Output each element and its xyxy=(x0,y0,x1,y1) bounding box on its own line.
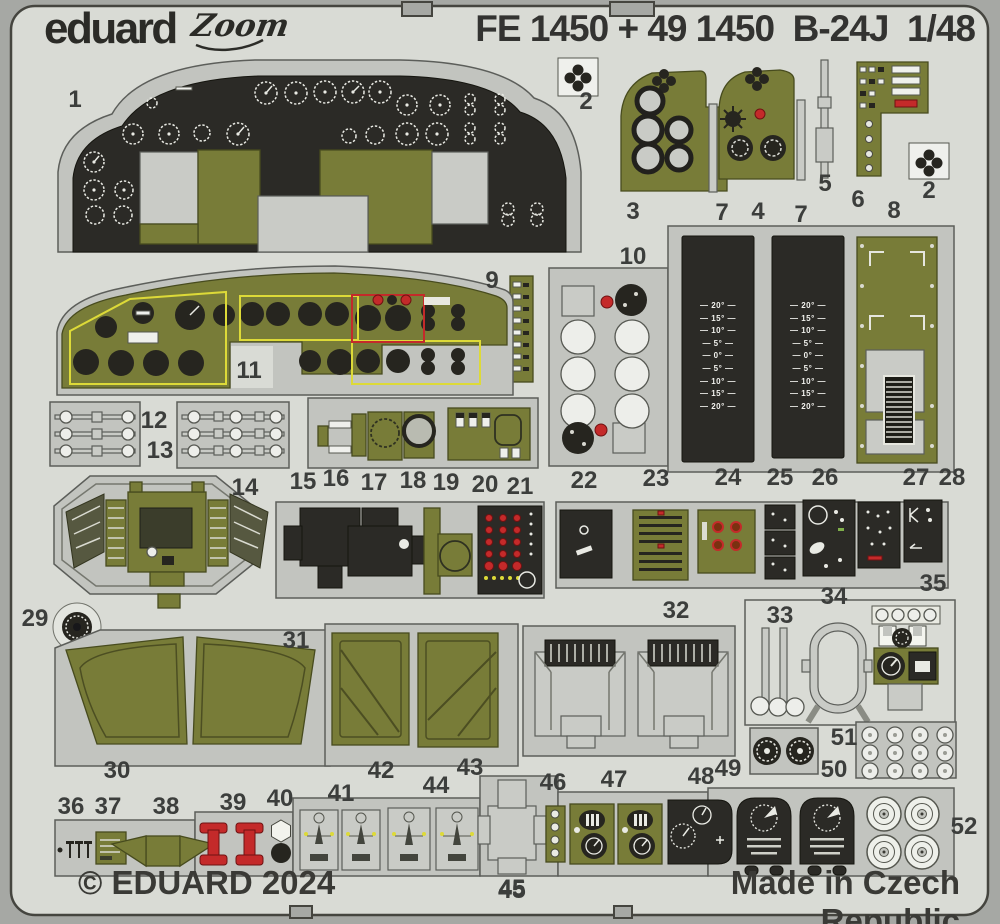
part-number-label: 39 xyxy=(220,789,247,817)
part-number-label: 5 xyxy=(818,170,831,198)
part-number-label: 9 xyxy=(485,267,498,295)
part-number-label: 31 xyxy=(283,627,310,655)
flap-scale-tick: — 10° — xyxy=(772,376,844,389)
flap-scale-tick: — 15° — xyxy=(682,313,754,326)
part-7-strip-b xyxy=(797,100,805,180)
flap-scale-tick: — 5° — xyxy=(682,338,754,351)
part-number-label: 3 xyxy=(626,198,639,226)
part-number-label: 35 xyxy=(920,570,947,598)
part-50-gears xyxy=(750,728,818,774)
photoetch-sheet: eduard Zoom FE 1450 + 49 1450 B-24J 1/48… xyxy=(0,0,1000,924)
part-number-label: 37 xyxy=(95,793,122,821)
part-32-seats xyxy=(523,626,735,756)
part-10-dials-frame xyxy=(549,268,668,466)
part-number-label: 48 xyxy=(688,763,715,791)
part-number-label: 42 xyxy=(368,757,395,785)
zoom-series-logo: Zoom xyxy=(189,8,292,44)
part-number-label: 16 xyxy=(323,465,350,493)
flap-scale-tick: — 5° — xyxy=(772,338,844,351)
part-number-label: 4 xyxy=(751,198,764,226)
part-1-main-instrument-panel xyxy=(58,60,581,252)
parts-15-21-fittings xyxy=(308,398,538,468)
part-number-label: 18 xyxy=(400,467,427,495)
flap-scale-tick: — 10° — xyxy=(772,325,844,338)
part-27-28-bulkhead-panel xyxy=(857,237,937,463)
part-number-label: 15 xyxy=(290,468,317,496)
part-number-label: 45 xyxy=(499,875,526,903)
part-number-label: 7 xyxy=(794,201,807,229)
flap-scale-tick: — 15° — xyxy=(772,388,844,401)
flap-scale-column: — 20° —— 15° —— 10° —— 5° —— 0° —— 5° ——… xyxy=(682,300,754,413)
flap-scale-tick: — 20° — xyxy=(772,300,844,313)
part-number-label: 30 xyxy=(104,757,131,785)
part-number-label: 1 xyxy=(68,86,81,114)
part-number-label: 17 xyxy=(361,469,388,497)
part-number-label: 29 xyxy=(22,605,49,633)
flap-scale-tick: — 15° — xyxy=(682,388,754,401)
part-number-label: 27 xyxy=(903,464,930,492)
part-number-label: 6 xyxy=(851,186,864,214)
part-number-label: 23 xyxy=(643,465,670,493)
part-number-label: 11 xyxy=(236,357,261,385)
parts-42-43-doors xyxy=(325,624,518,766)
part-number-label: 24 xyxy=(715,464,742,492)
part-51-grommets xyxy=(856,722,956,779)
flap-scale-tick: — 10° — xyxy=(682,325,754,338)
part-number-label: 20 xyxy=(472,471,499,499)
flap-scale-column: — 20° —— 15° —— 10° —— 5° —— 0° —— 5° ——… xyxy=(772,300,844,413)
sheet-title: FE 1450 + 49 1450 B-24J 1/48 xyxy=(430,8,975,50)
flap-scale-tick: — 10° — xyxy=(682,376,754,389)
part-number-label: 33 xyxy=(767,602,794,630)
part-number-label: 44 xyxy=(423,772,450,800)
part-number-label: 14 xyxy=(232,474,259,502)
flap-scale-tick: — 5° — xyxy=(682,363,754,376)
part-number-label: 25 xyxy=(767,464,794,492)
part-number-label: 12 xyxy=(141,407,168,435)
part-number-label: 51 xyxy=(831,724,858,752)
flap-scale-tick: — 20° — xyxy=(772,401,844,414)
part-number-label: 19 xyxy=(433,469,460,497)
part-number-label: 41 xyxy=(328,780,355,808)
part-number-label: 47 xyxy=(601,766,628,794)
part-number-label: 32 xyxy=(663,597,690,625)
part-number-label: 2 xyxy=(579,88,592,116)
part-number-label: 50 xyxy=(821,756,848,784)
part-number-label: 2 xyxy=(922,177,935,205)
part-number-label: 13 xyxy=(147,437,174,465)
brand-logo: eduard xyxy=(44,4,176,54)
flap-scale-tick: — 5° — xyxy=(772,363,844,376)
part-number-label: 40 xyxy=(267,785,294,813)
made-in-text: Made in Czech Republic xyxy=(590,864,960,924)
part-number-label: 46 xyxy=(540,769,567,797)
flap-scale-tick: — 0° — xyxy=(682,350,754,363)
part-number-label: 22 xyxy=(571,467,598,495)
part-number-label: 43 xyxy=(457,754,484,782)
part-number-label: 8 xyxy=(887,197,900,225)
part-number-label: 26 xyxy=(812,464,839,492)
part-number-label: 10 xyxy=(620,243,647,271)
part-number-label: 36 xyxy=(58,793,85,821)
flap-scale-tick: — 0° — xyxy=(772,350,844,363)
part-number-label: 21 xyxy=(507,473,534,501)
part-number-label: 38 xyxy=(153,793,180,821)
part-number-label: 7 xyxy=(715,199,728,227)
copyright-text: © EDUARD 2024 xyxy=(78,864,335,902)
flap-scale-tick: — 20° — xyxy=(682,401,754,414)
part-number-label: 28 xyxy=(939,464,966,492)
part-number-label: 52 xyxy=(951,813,978,841)
part-2-clover-right xyxy=(909,143,949,179)
part-number-label: 49 xyxy=(715,755,742,783)
flap-scale-tick: — 20° — xyxy=(682,300,754,313)
part-number-label: 34 xyxy=(821,583,848,611)
flap-scale-tick: — 15° — xyxy=(772,313,844,326)
part-7-strip-a xyxy=(709,104,717,192)
part-4-panel xyxy=(719,67,794,179)
